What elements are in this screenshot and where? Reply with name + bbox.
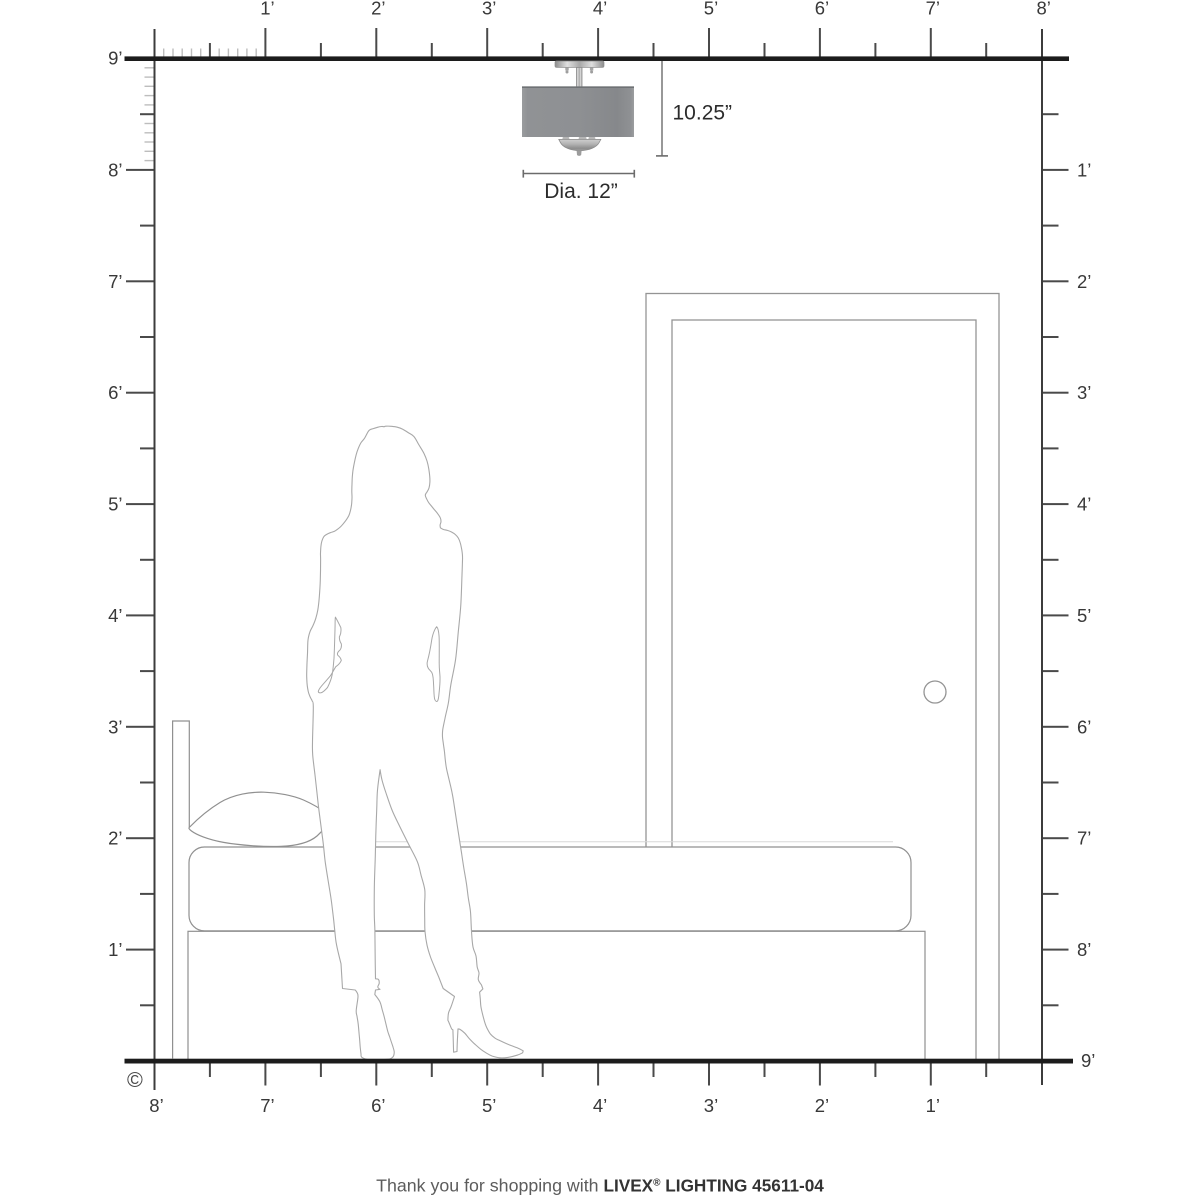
svg-text:6’: 6’ <box>371 1095 385 1116</box>
svg-text:4’: 4’ <box>1077 494 1091 515</box>
svg-text:4’: 4’ <box>108 605 122 626</box>
svg-text:8’: 8’ <box>1077 939 1091 960</box>
svg-text:1’: 1’ <box>108 939 122 960</box>
svg-text:7’: 7’ <box>260 1095 274 1116</box>
svg-text:7’: 7’ <box>1077 828 1091 849</box>
svg-text:7’: 7’ <box>926 0 940 19</box>
svg-text:5’: 5’ <box>482 1095 496 1116</box>
svg-text:1’: 1’ <box>926 1095 940 1116</box>
svg-text:8’: 8’ <box>108 159 122 180</box>
svg-text:3’: 3’ <box>1077 382 1091 403</box>
svg-text:5’: 5’ <box>1077 605 1091 626</box>
svg-text:10.25”: 10.25” <box>673 102 733 125</box>
svg-text:7’: 7’ <box>108 271 122 292</box>
svg-text:2’: 2’ <box>1077 271 1091 292</box>
svg-text:5’: 5’ <box>108 494 122 515</box>
svg-text:3’: 3’ <box>704 1095 718 1116</box>
svg-text:2’: 2’ <box>108 828 122 849</box>
svg-text:4’: 4’ <box>593 0 607 19</box>
svg-text:1’: 1’ <box>1077 159 1091 180</box>
svg-text:4’: 4’ <box>593 1095 607 1116</box>
svg-text:6’: 6’ <box>815 0 829 19</box>
svg-text:1’: 1’ <box>260 0 274 19</box>
svg-text:9’: 9’ <box>108 48 122 69</box>
svg-text:Thank you for shopping with LI: Thank you for shopping with LIVEX® LIGHT… <box>376 1176 824 1196</box>
svg-text:3’: 3’ <box>108 716 122 737</box>
svg-text:5’: 5’ <box>704 0 718 19</box>
svg-text:3’: 3’ <box>482 0 496 19</box>
svg-text:2’: 2’ <box>371 0 385 19</box>
svg-text:8’: 8’ <box>1036 0 1050 19</box>
svg-text:Dia. 12”: Dia. 12” <box>544 180 618 203</box>
svg-text:9’: 9’ <box>1081 1050 1095 1071</box>
svg-text:©: © <box>127 1068 143 1092</box>
svg-text:6’: 6’ <box>108 382 122 403</box>
svg-text:2’: 2’ <box>815 1095 829 1116</box>
svg-text:6’: 6’ <box>1077 716 1091 737</box>
svg-text:8’: 8’ <box>149 1095 163 1116</box>
